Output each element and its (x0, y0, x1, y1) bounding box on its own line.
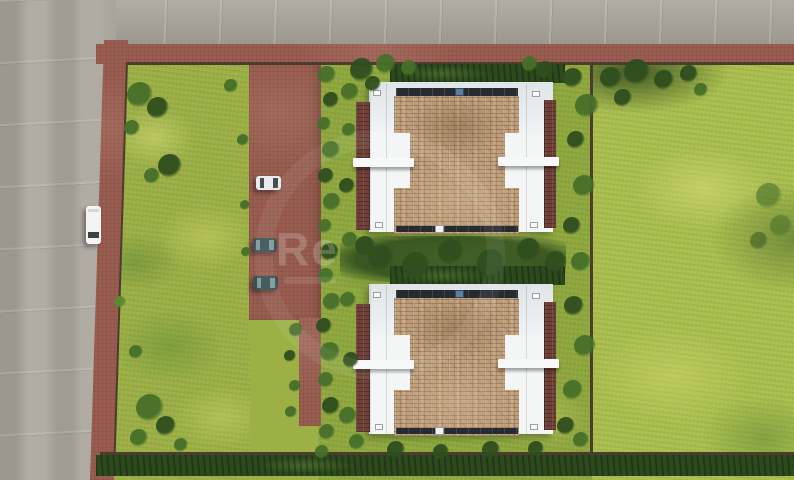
bush (285, 406, 297, 418)
house-2-roof-hatch (375, 424, 383, 430)
house-2-canopy-right (498, 359, 559, 368)
fence-right (590, 62, 593, 456)
lawn-right-parcel (592, 64, 794, 480)
watermark-tagline (284, 277, 336, 284)
road-horizontal (0, 0, 794, 44)
house-1-roof-hatch (530, 222, 538, 228)
house-1-roof-hatch (532, 91, 540, 97)
house-1-canopy-right (498, 157, 559, 166)
house-2-ridge-bottom (396, 428, 518, 434)
sidewalk-top (96, 44, 794, 64)
house-1-roof-hatch (373, 90, 381, 96)
watermark-text: Re (276, 222, 339, 276)
house-2-roof-hatch (530, 424, 538, 430)
house-2-chimney (435, 427, 444, 435)
aerial-site-render: Re (0, 0, 794, 480)
lawn-left-parcel (112, 62, 250, 480)
bush (284, 350, 296, 362)
hedge-bottom (96, 455, 794, 476)
house-2-roof-hatch (532, 293, 540, 299)
house-1-roof-vent (455, 88, 464, 96)
